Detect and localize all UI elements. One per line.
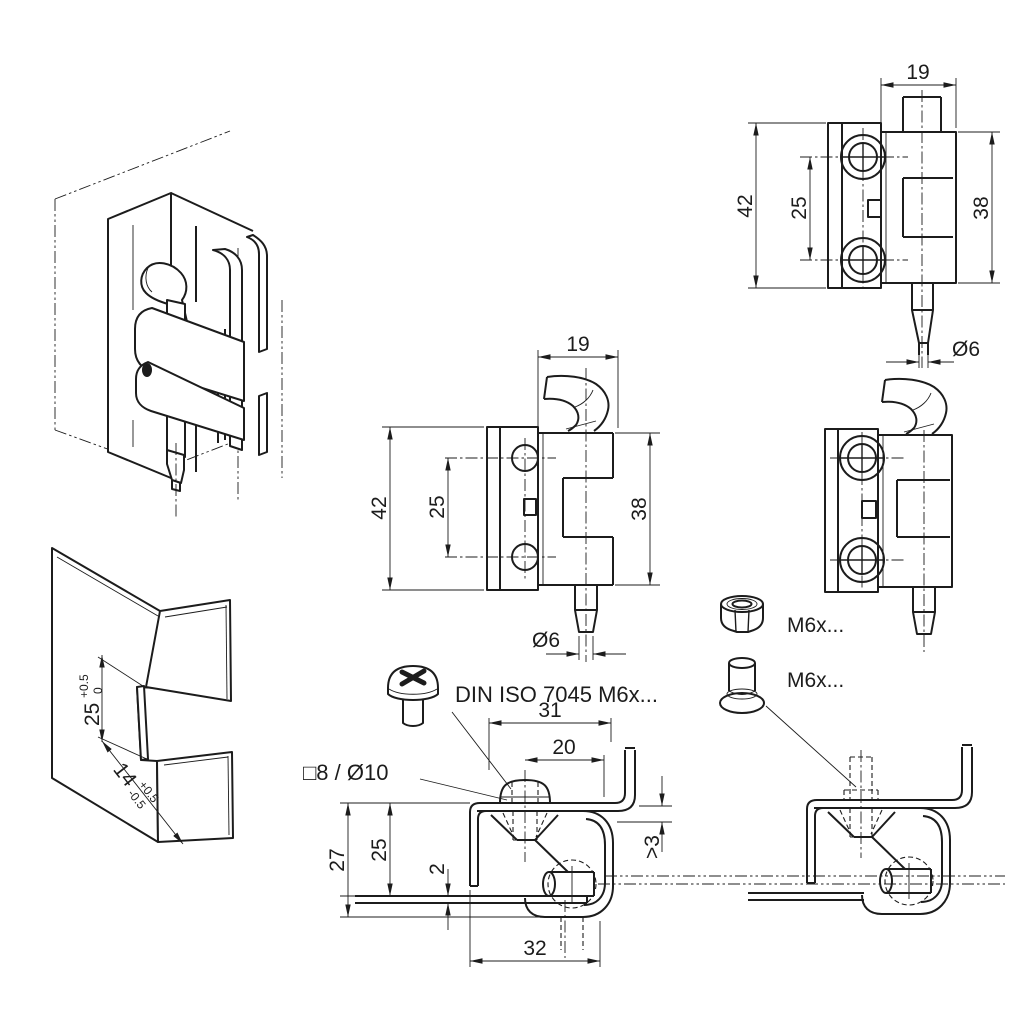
side-view-hook-hinge xyxy=(825,379,952,652)
hinge-pin-section xyxy=(880,857,933,905)
dim-notch-height-tol-upper: +0.5 xyxy=(77,674,91,698)
dim-hole-spacing-label: 25 xyxy=(426,495,449,518)
dim-2-label: 2 xyxy=(426,863,449,875)
section-view-stud-mounting xyxy=(748,745,972,914)
dim-pin-dia-label: Ø6 xyxy=(532,629,560,652)
hole-spec-label: □8 / Ø10 xyxy=(303,760,388,785)
screw-leader-line xyxy=(452,712,511,789)
iso-view-hinge-mounted xyxy=(55,131,282,517)
hinge-pin-section xyxy=(543,860,596,908)
hinge-bracket-section xyxy=(477,811,613,917)
front-view-pin-hinge: 19 42 25 38 Ø6 xyxy=(734,61,1000,368)
phillips-cross-icon xyxy=(402,671,424,684)
pin xyxy=(912,283,933,355)
dim-leaf-height-label: 38 xyxy=(628,497,651,520)
dim-width-label: 19 xyxy=(566,333,589,356)
dim-height-label: 42 xyxy=(368,496,391,519)
dim-leaf-height-label: 38 xyxy=(970,196,993,219)
hole-spec-callout: □8 / Ø10 xyxy=(303,760,507,800)
knuckle-notch xyxy=(897,480,950,537)
dim-height-42: 42 xyxy=(734,123,826,288)
dim-hole-spacing-25: 25 xyxy=(788,157,811,260)
dim-20-label: 20 xyxy=(552,736,575,759)
dim-notch-height-tol-lower: 0 xyxy=(91,687,105,694)
fastener-nut: M6x... xyxy=(721,596,844,637)
front-view-hook-hinge: 19 42 25 38 Ø6 xyxy=(368,333,660,662)
dim-20: 20 xyxy=(525,736,604,797)
hinge-bracket-section xyxy=(814,808,950,914)
dim-pin-diameter: Ø6 xyxy=(532,629,626,660)
dim-hole-spacing-label: 25 xyxy=(788,196,811,219)
stud-leader-line xyxy=(766,706,856,787)
dim-height-label: 42 xyxy=(734,194,757,217)
dim-width-label: 19 xyxy=(906,61,929,84)
plate-notch xyxy=(524,499,536,515)
frame-sheet xyxy=(470,748,635,886)
dim-32: 32 xyxy=(470,890,600,967)
fastener-screw: DIN ISO 7045 M6x... xyxy=(388,666,658,789)
cutout-lower-flange xyxy=(157,752,233,842)
dim-31-label: 31 xyxy=(538,699,561,722)
hook xyxy=(544,376,609,431)
plate-notch xyxy=(862,501,876,518)
hinge-pin-iso xyxy=(167,443,184,517)
technical-drawing-page: 25 +0.5 0 14 +0.5 -0.5 xyxy=(0,0,1024,1024)
nut-spec-label: M6x... xyxy=(787,614,844,637)
dim-pin-dia-label: Ø6 xyxy=(952,338,980,361)
dim-min-gap-label: >3 xyxy=(641,835,664,859)
dim-27: 27 xyxy=(326,803,545,917)
knuckle-notch xyxy=(903,178,953,237)
knuckle-notch xyxy=(563,478,613,537)
dim-25-label: 25 xyxy=(368,838,391,861)
hole-spec-leader xyxy=(420,779,507,800)
hinge-assembly-iso xyxy=(135,249,244,517)
hook xyxy=(882,379,947,434)
stud-spec-label: M6x... xyxy=(787,669,844,692)
dim-27-label: 27 xyxy=(326,848,349,871)
iso-view-frame-cutout: 25 +0.5 0 14 +0.5 -0.5 xyxy=(52,548,233,844)
dim-32-label: 32 xyxy=(523,937,546,960)
dim-width-19: 19 xyxy=(881,61,956,128)
dim-leaf-height-38: 38 xyxy=(958,132,1000,283)
dim-notch-height-value: 25 xyxy=(81,703,104,726)
section-view-screw-mounting: 31 20 27 25 2 32 xyxy=(303,699,672,967)
dim-pin-diameter: Ø6 xyxy=(886,338,980,368)
dim-31: 31 xyxy=(489,699,611,770)
dim-leaf-height-38: 38 xyxy=(615,433,660,585)
set-screw-iso xyxy=(142,363,152,377)
door-panel-sheet xyxy=(748,893,864,900)
dim-hole-spacing-25: 25 xyxy=(426,458,449,557)
fastener-weld-stud: M6x... xyxy=(720,658,856,787)
technical-drawing-canvas: 25 +0.5 0 14 +0.5 -0.5 xyxy=(0,0,1024,1024)
cutout-upper-flange xyxy=(146,600,231,701)
plate-notch xyxy=(868,200,881,217)
